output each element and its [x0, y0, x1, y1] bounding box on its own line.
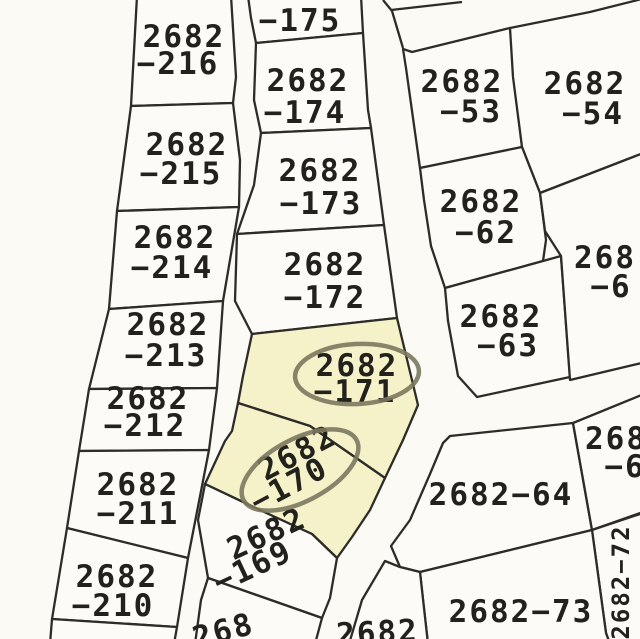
road-edge-top-fork: [383, 0, 403, 48]
road-edge-top-right-branch: [391, 2, 462, 10]
parcel-label-2682-213: −213: [125, 338, 208, 374]
parcel-label-268-6-upper: −6: [590, 269, 631, 305]
parcel-label-2682-173: −173: [280, 186, 363, 222]
parcel-label-2682-210: −210: [72, 588, 155, 624]
parcel-label-2682-54: −54: [562, 96, 624, 132]
parcel-label-2682-63: −63: [477, 328, 539, 364]
parcel-label-2682-215: −215: [140, 156, 223, 192]
parcel-label-2682-173: 2682: [279, 153, 362, 189]
parcel-label-2682-53: −53: [440, 94, 502, 130]
parcel-label-2682-172: 2682: [284, 247, 367, 283]
parcel-label-2682-64: 2682−64: [429, 477, 574, 513]
parcel-label-2682-216: −216: [137, 46, 220, 82]
parcel-label-2682-174: 2682: [267, 63, 350, 99]
parcel-label-2682-73: 2682−73: [449, 594, 594, 630]
parcel-label-268-6-lower: −6: [604, 449, 640, 485]
parcel-label-2682-62: −62: [455, 215, 517, 251]
cadastral-map-svg: 2682−2162682−2152682−2142682−2132682−212…: [0, 0, 640, 639]
parcel-label-2682-72: 2682−72: [607, 524, 635, 639]
parcel-label-2682-214: −214: [131, 250, 214, 286]
parcel-label-2682-172: −172: [284, 280, 367, 316]
parcel-label-2682-211: −211: [97, 496, 180, 532]
parcel-label-2682-212: −212: [104, 408, 187, 444]
parcel-label-2682-175: −175: [259, 3, 342, 39]
cadastral-map: 2682−2162682−2152682−2142682−2132682−212…: [0, 0, 640, 639]
parcel-label-2682-partial-bottom-center: 2682: [335, 613, 419, 639]
parcel-label-2682-174: −174: [264, 95, 347, 131]
